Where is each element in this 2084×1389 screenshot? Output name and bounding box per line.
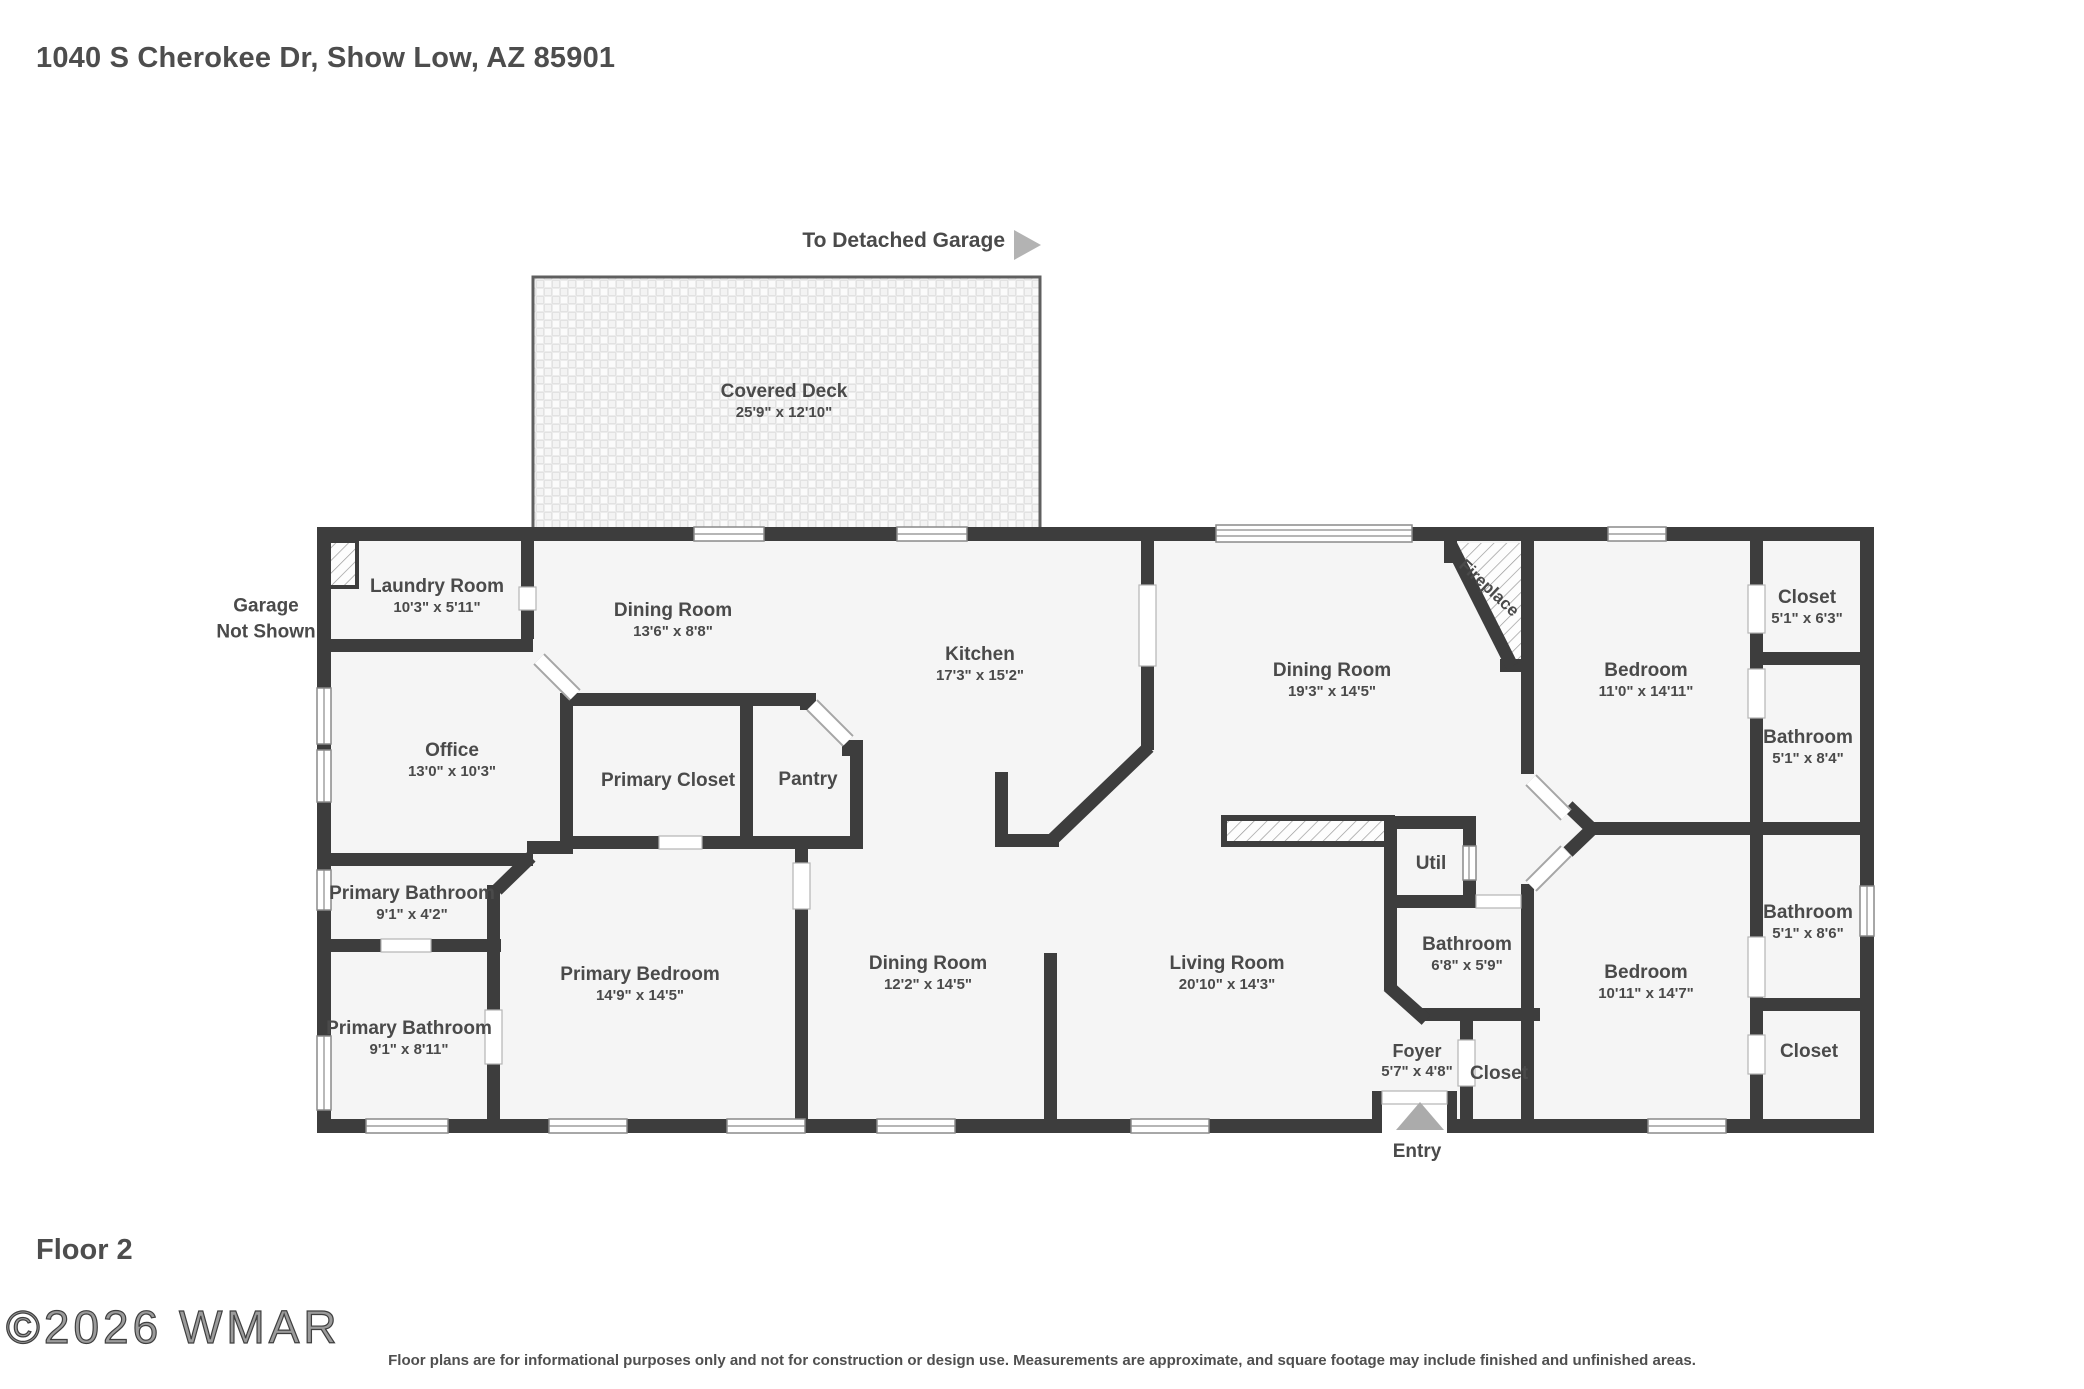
garage-not-shown-note: Garage Not Shown [216,593,315,644]
room-label-office: Office13'0" x 10'3" [408,739,496,781]
room-label-foyer: Foyer5'7" x 4'8" [1381,1040,1452,1081]
room-label-kitchen: Kitchen17'3" x 15'2" [936,643,1024,685]
entry-label: Entry [1393,1140,1442,1164]
room-label-closet-1: Closet5'1" x 6'3" [1771,586,1842,628]
room-label-pantry: Pantry [778,768,837,792]
room-label-util: Util [1416,852,1447,876]
room-label-dining-3: Dining Room12'2" x 14'5" [869,952,987,994]
room-label-primary-bathroom-1: Primary Bathroom9'1" x 4'2" [329,882,495,924]
room-label-bathroom-1: Bathroom5'1" x 8'4" [1763,726,1853,768]
room-label-covered-deck: Covered Deck25'9" x 12'10" [721,380,848,422]
room-label-bedroom-2: Bedroom10'11" x 14'7" [1598,961,1694,1003]
room-label-living-room: Living Room20'10" x 14'3" [1169,952,1284,994]
room-label-dining-2: Dining Room19'3" x 14'5" [1273,659,1391,701]
room-label-primary-bedroom: Primary Bedroom14'9" x 14'5" [560,963,719,1005]
disclaimer-text: Floor plans are for informational purpos… [0,1352,2084,1369]
room-label-bedroom-1: Bedroom11'0" x 14'11" [1599,659,1694,701]
floor-plan-page: 1040 S Cherokee Dr, Show Low, AZ 85901 T… [0,0,2084,1389]
room-label-bathroom-2: Bathroom6'8" x 5'9" [1422,933,1512,975]
room-label-primary-closet: Primary Closet [601,769,735,793]
room-label-laundry: Laundry Room10'3" x 5'11" [370,575,504,617]
floor-number-label: Floor 2 [36,1234,133,1267]
kitchen-counter [1224,818,1392,844]
room-label-bathroom-3: Bathroom5'1" x 8'6" [1763,901,1853,943]
floor-plan-drawing [0,0,2084,1389]
room-label-closet-3: Closet [1470,1062,1528,1086]
watermark-logo: ©2026 WMAR [6,1300,341,1354]
room-label-closet-2: Closet [1780,1040,1838,1064]
room-label-primary-bathroom-2: Primary Bathroom9'1" x 8'11" [326,1017,492,1059]
room-label-dining-1: Dining Room13'6" x 8'8" [614,599,732,641]
